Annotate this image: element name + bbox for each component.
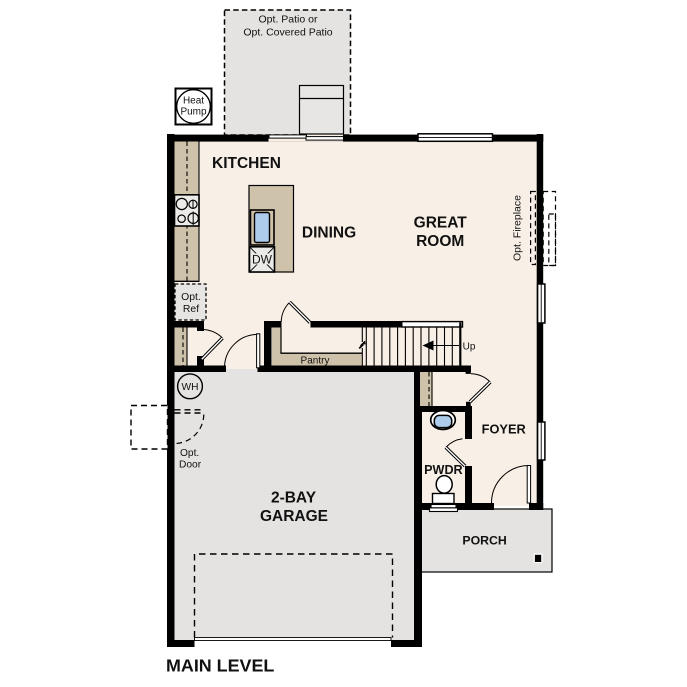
svg-text:Opt.: Opt. — [181, 292, 201, 303]
svg-text:DINING: DINING — [302, 224, 356, 241]
svg-text:Opt. Covered Patio: Opt. Covered Patio — [243, 27, 332, 39]
svg-text:PWDR: PWDR — [424, 463, 462, 477]
svg-text:Heat: Heat — [183, 95, 204, 106]
svg-text:Opt. Fireplace: Opt. Fireplace — [512, 195, 524, 261]
svg-text:PORCH: PORCH — [462, 533, 507, 547]
svg-text:Opt.: Opt. — [180, 448, 199, 459]
svg-text:DW: DW — [252, 253, 273, 267]
svg-text:ROOM: ROOM — [416, 233, 464, 250]
svg-text:FOYER: FOYER — [482, 422, 526, 437]
svg-text:MAIN LEVEL: MAIN LEVEL — [166, 656, 274, 676]
svg-text:Door: Door — [179, 460, 202, 471]
svg-text:Pump: Pump — [180, 107, 207, 118]
svg-text:Up: Up — [463, 342, 476, 353]
svg-text:KITCHEN: KITCHEN — [212, 155, 281, 172]
svg-text:WH: WH — [182, 382, 199, 393]
svg-text:GREAT: GREAT — [414, 215, 468, 232]
svg-text:GARAGE: GARAGE — [260, 508, 328, 525]
svg-text:Ref: Ref — [183, 304, 199, 315]
svg-text:Opt. Patio or: Opt. Patio or — [259, 14, 318, 26]
svg-text:2-BAY: 2-BAY — [271, 489, 317, 506]
svg-text:Pantry: Pantry — [301, 356, 330, 367]
